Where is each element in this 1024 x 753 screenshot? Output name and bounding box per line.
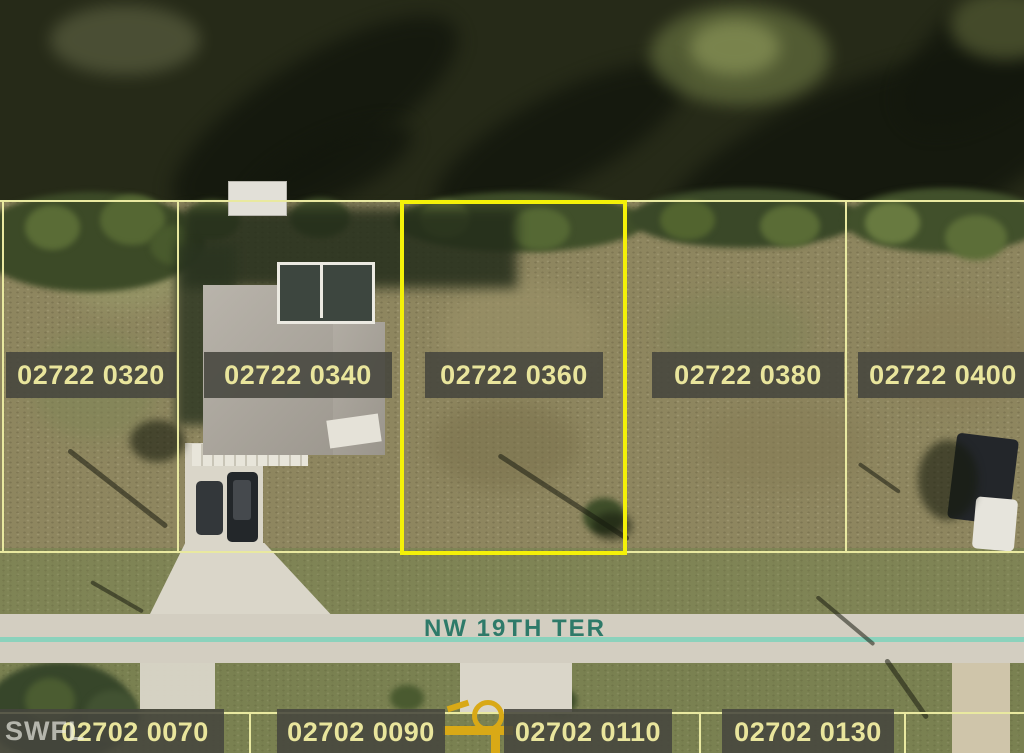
parcel-line-west xyxy=(2,200,4,553)
parcel-line xyxy=(699,712,701,753)
boat-dock xyxy=(228,181,287,216)
parcel-line xyxy=(177,200,179,553)
parcel-label-02702-0090[interactable]: 02702 0090 xyxy=(277,709,445,753)
watermark-text: SWFL xyxy=(5,716,85,747)
algae-patch xyxy=(50,5,200,75)
tree-canopy xyxy=(865,202,920,244)
driveway-stub xyxy=(140,663,215,709)
parcel-label-02722-0380[interactable]: 02722 0380 xyxy=(652,352,844,398)
algae-patch xyxy=(690,20,780,75)
bush xyxy=(390,685,424,711)
tree-canopy xyxy=(760,205,820,247)
parcel-label-02722-0360[interactable]: 02722 0360 xyxy=(425,352,603,398)
parcel-line xyxy=(249,712,251,753)
parcel-label-02722-0320[interactable]: 02722 0320 xyxy=(6,352,176,398)
parked-car xyxy=(196,481,223,535)
parcel-line xyxy=(904,712,906,753)
pool-screen-enclosure xyxy=(277,262,375,324)
canal-water xyxy=(0,0,1024,202)
aerial-parcel-map[interactable]: NW 19TH TER 02722 0320 02722 0340 02722 xyxy=(0,0,1024,753)
map-marker-bar-icon xyxy=(443,726,513,735)
vehicle-shadow xyxy=(918,440,978,520)
tree-canopy xyxy=(945,215,1007,260)
boat-trailer xyxy=(972,496,1018,551)
street-name-label: NW 19TH TER xyxy=(400,615,630,639)
map-marker-stem-icon xyxy=(491,735,500,753)
tree-canopy xyxy=(25,205,80,250)
van-roof-highlight xyxy=(233,480,251,520)
parcel-line-front xyxy=(0,551,404,553)
parcel-label-02722-0340[interactable]: 02722 0340 xyxy=(204,352,392,398)
tree-canopy xyxy=(660,200,715,240)
pool-cage-mullion xyxy=(320,265,323,318)
driveway-stub xyxy=(952,663,1010,753)
parcel-label-02702-0110[interactable]: 02702 0110 xyxy=(504,709,672,753)
parcel-line-front xyxy=(623,551,1024,553)
parcel-label-02722-0400[interactable]: 02722 0400 xyxy=(858,352,1024,398)
parcel-line xyxy=(845,200,847,553)
parcel-label-02702-0130[interactable]: 02702 0130 xyxy=(722,709,894,753)
